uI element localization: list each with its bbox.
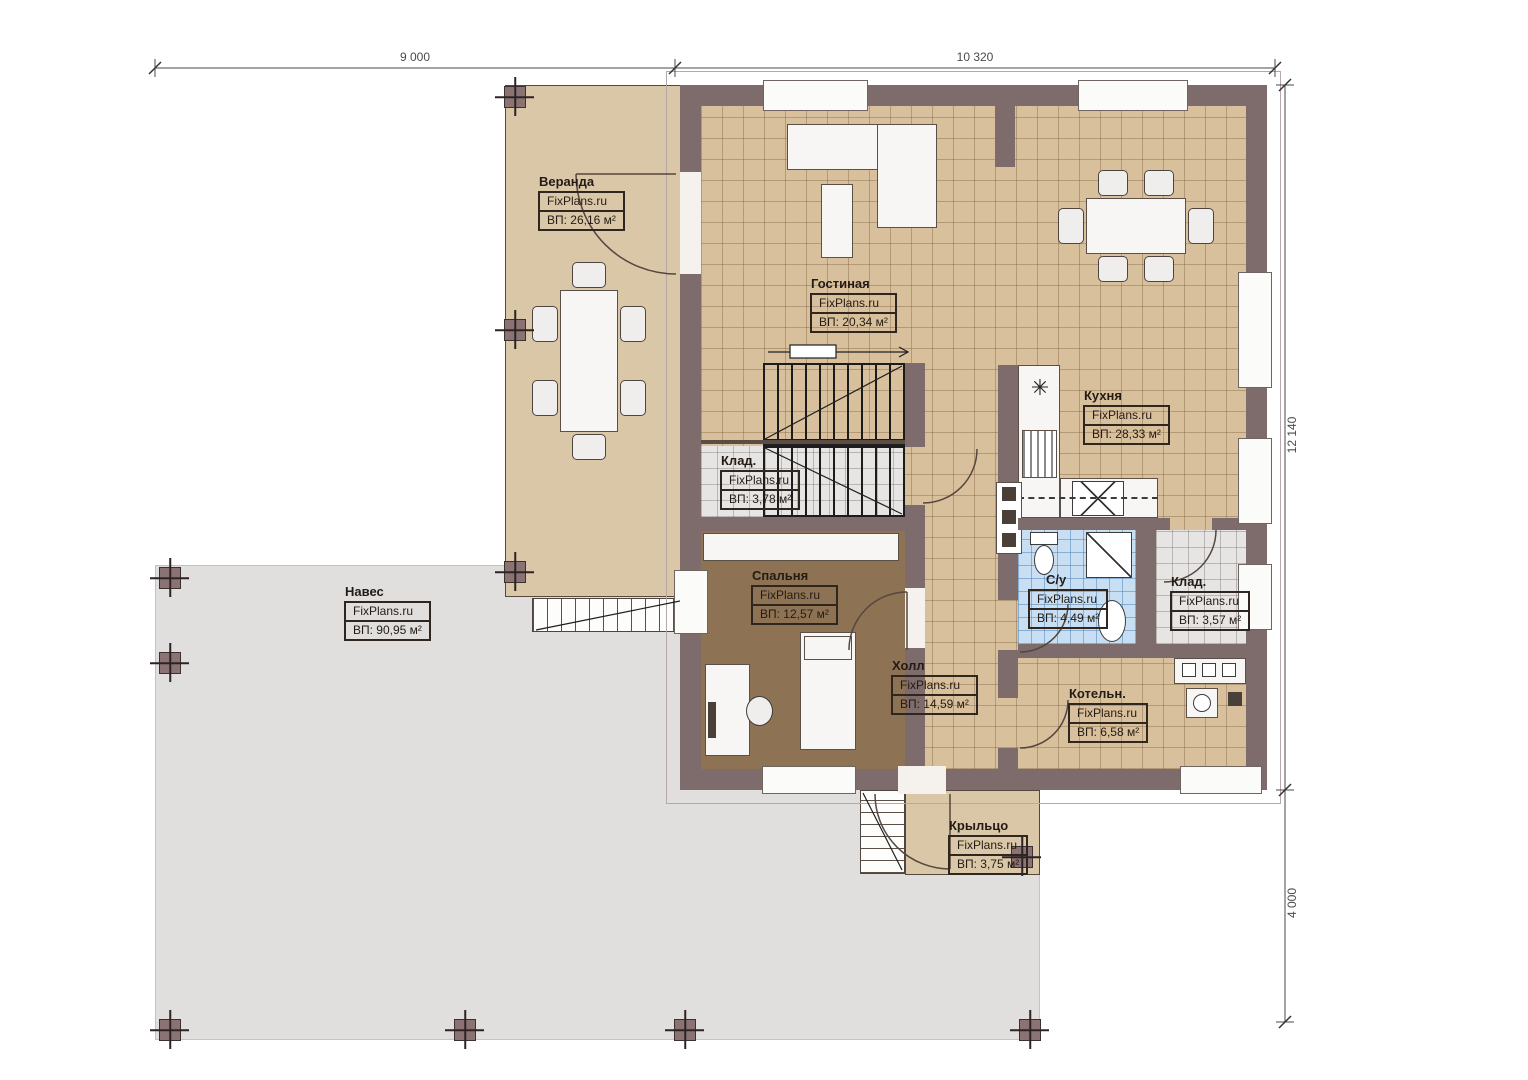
wall-bedroom-north <box>701 517 905 531</box>
room-area: ВП: 3,78 м² <box>722 491 798 508</box>
label-living: Гостиная FixPlans.ruВП: 20,34 м² <box>810 276 897 333</box>
room-area: ВП: 90,95 м² <box>346 622 429 639</box>
brand-watermark: FixPlans.ru <box>1085 407 1168 426</box>
boiler-counter-box <box>1222 663 1236 677</box>
brand-watermark: FixPlans.ru <box>1030 591 1106 610</box>
wardrobe <box>703 533 899 561</box>
brand-watermark: FixPlans.ru <box>540 193 623 212</box>
dining-chair <box>1144 256 1174 282</box>
wall-bath-west-upper <box>998 554 1018 600</box>
window-bottom-boiler <box>1180 766 1262 794</box>
canopy-post <box>454 1019 476 1041</box>
niche-box <box>1002 533 1016 547</box>
label-bathroom: С/у FixPlans.ruВП: 4,49 м² <box>1028 572 1108 629</box>
room-name: Гостиная <box>811 276 897 291</box>
brand-watermark: FixPlans.ru <box>812 295 895 314</box>
dining-chair <box>1058 208 1084 244</box>
label-porch: Крыльцо FixPlans.ruВП: 3,75 м² <box>948 818 1028 875</box>
veranda-post <box>504 561 526 583</box>
brand-watermark: FixPlans.ru <box>722 472 798 491</box>
canopy-post <box>674 1019 696 1041</box>
veranda-chair <box>620 306 646 342</box>
room-name: Навес <box>345 584 431 599</box>
desk-chair <box>746 696 773 726</box>
veranda-chair <box>572 434 606 460</box>
washing-machine-door <box>1193 694 1211 712</box>
label-storage1: Клад. FixPlans.ruВП: 3,78 м² <box>720 453 800 510</box>
veranda-chair <box>572 262 606 288</box>
dining-chair <box>1188 208 1214 244</box>
boiler-unit <box>1228 692 1242 706</box>
veranda-chair <box>620 380 646 416</box>
dim-right-upper: 12 140 <box>1285 405 1299 465</box>
room-name: Клад. <box>1171 574 1250 589</box>
room-area: ВП: 26,16 м² <box>540 212 623 229</box>
sofa-chaise <box>877 124 937 228</box>
window-bottom-bedroom <box>762 766 856 794</box>
dim-right-lower: 4 000 <box>1285 877 1299 929</box>
floor-plan-page: ✳ <box>0 0 1528 1080</box>
window-top-left <box>763 80 868 111</box>
dining-chair <box>1098 170 1128 196</box>
label-bedroom: Спальня FixPlans.ruВП: 12,57 м² <box>751 568 838 625</box>
niche-box <box>1002 510 1016 524</box>
front-door-opening <box>898 766 946 794</box>
veranda-steps <box>532 598 683 632</box>
wall-kitchen-west <box>998 365 1018 482</box>
window-left-bedroom <box>674 570 708 634</box>
room-area: ВП: 6,58 м² <box>1070 724 1146 741</box>
wall-bath-storage2 <box>1136 530 1156 650</box>
canopy-post <box>159 1019 181 1041</box>
bedroom-door-opening <box>905 588 925 648</box>
desk-monitor <box>708 702 716 738</box>
window-right-dining <box>1238 272 1272 388</box>
wall-stub-top <box>995 106 1015 167</box>
counter-dashed-line <box>1018 497 1158 499</box>
label-boiler: Котельн. FixPlans.ruВП: 6,58 м² <box>1068 686 1148 743</box>
label-hall: Холл FixPlans.ruВП: 14,59 м² <box>891 658 978 715</box>
room-name: Котельн. <box>1069 686 1148 701</box>
label-kitchen: Кухня FixPlans.ruВП: 28,33 м² <box>1083 388 1170 445</box>
wall-storage2-north-left <box>1158 518 1170 530</box>
canopy-post <box>159 652 181 674</box>
dim-top-left: 9 000 <box>385 50 445 64</box>
room-area: ВП: 20,34 м² <box>812 314 895 331</box>
brand-watermark: FixPlans.ru <box>893 677 976 696</box>
window-right-kitchen <box>1238 438 1272 524</box>
veranda-door-opening <box>680 172 701 274</box>
boiler-counter-box <box>1202 663 1216 677</box>
room-area: ВП: 4,49 м² <box>1030 610 1106 627</box>
room-name: Крыльцо <box>949 818 1028 833</box>
brand-watermark: FixPlans.ru <box>346 603 429 622</box>
dim-top-right: 10 320 <box>940 50 1010 64</box>
room-area: ВП: 3,75 м² <box>950 856 1026 873</box>
room-area: ВП: 3,57 м² <box>1172 612 1248 629</box>
room-name: Спальня <box>752 568 838 583</box>
wall-boiler-north <box>1018 644 1246 658</box>
brand-watermark: FixPlans.ru <box>753 587 836 606</box>
dining-chair <box>1144 170 1174 196</box>
veranda-post <box>504 86 526 108</box>
veranda-post <box>504 319 526 341</box>
wall-storage1-north <box>701 440 905 444</box>
room-area: ВП: 14,59 м² <box>893 696 976 713</box>
veranda-chair <box>532 306 558 342</box>
label-storage2: Клад. FixPlans.ruВП: 3,57 м² <box>1170 574 1250 631</box>
brand-watermark: FixPlans.ru <box>950 837 1026 856</box>
coffee-table <box>821 184 853 258</box>
room-name: Холл <box>892 658 978 673</box>
room-name: Кухня <box>1084 388 1170 403</box>
dining-table <box>1086 198 1186 254</box>
canopy-post <box>159 567 181 589</box>
stairs-upper-run <box>763 363 905 441</box>
bed-pillow <box>804 636 852 660</box>
room-name: С/у <box>1046 572 1108 587</box>
wall-stair-east <box>905 363 925 447</box>
brand-watermark: FixPlans.ru <box>1172 593 1248 612</box>
brand-watermark: FixPlans.ru <box>1070 705 1146 724</box>
veranda-table <box>560 290 618 432</box>
wall-hall-east <box>998 650 1018 698</box>
toilet-tank <box>1030 532 1058 545</box>
room-area: ВП: 12,57 м² <box>753 606 836 623</box>
canopy-post <box>1019 1019 1041 1041</box>
label-canopy: Навес FixPlans.ruВП: 90,95 м² <box>344 584 431 641</box>
veranda-chair <box>532 380 558 416</box>
window-top-right <box>1078 80 1188 111</box>
wall-bath-north <box>1018 518 1158 530</box>
room-name: Веранда <box>539 174 625 189</box>
label-veranda: Веранда FixPlans.ruВП: 26,16 м² <box>538 174 625 231</box>
wall-hall-west-upper <box>905 505 925 588</box>
niche-box <box>1002 487 1016 501</box>
toilet-bowl <box>1034 545 1054 575</box>
room-area: ВП: 28,33 м² <box>1085 426 1168 443</box>
room-name: Клад. <box>721 453 800 468</box>
dining-chair <box>1098 256 1128 282</box>
wall-boiler-west <box>998 748 1018 769</box>
boiler-counter-box <box>1182 663 1196 677</box>
kitchen-sink-icon: ✳ <box>1026 374 1054 402</box>
fridge <box>1022 430 1057 478</box>
